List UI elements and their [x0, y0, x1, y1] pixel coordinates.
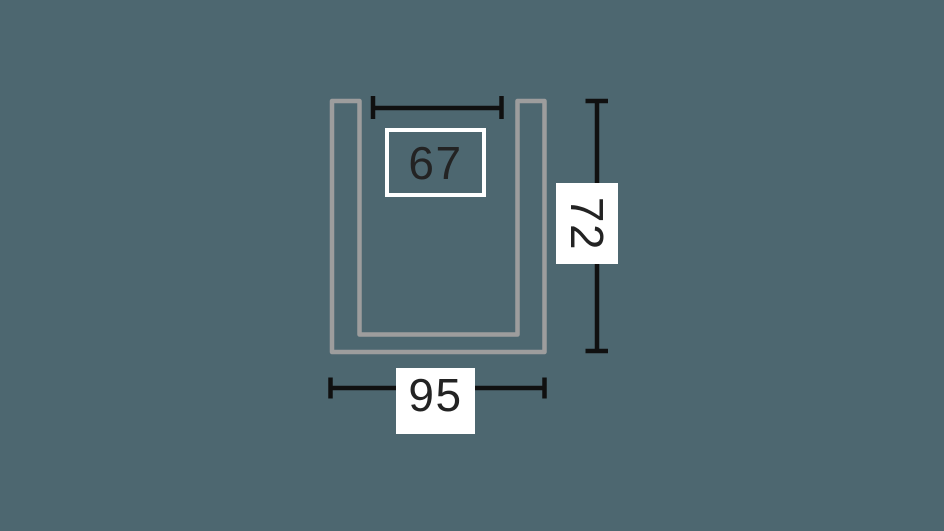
depth-label-box: 72	[556, 183, 618, 264]
dimension-diagram: 67 72 95	[0, 0, 944, 531]
diagram-canvas	[0, 0, 944, 531]
outer-width-value: 95	[408, 372, 462, 418]
inner-width-value: 67	[408, 140, 462, 186]
dimension-inner-width	[373, 96, 502, 119]
outer-width-label-box: 95	[396, 368, 475, 434]
inner-width-label-box: 67	[385, 128, 486, 197]
depth-value: 72	[564, 196, 610, 250]
